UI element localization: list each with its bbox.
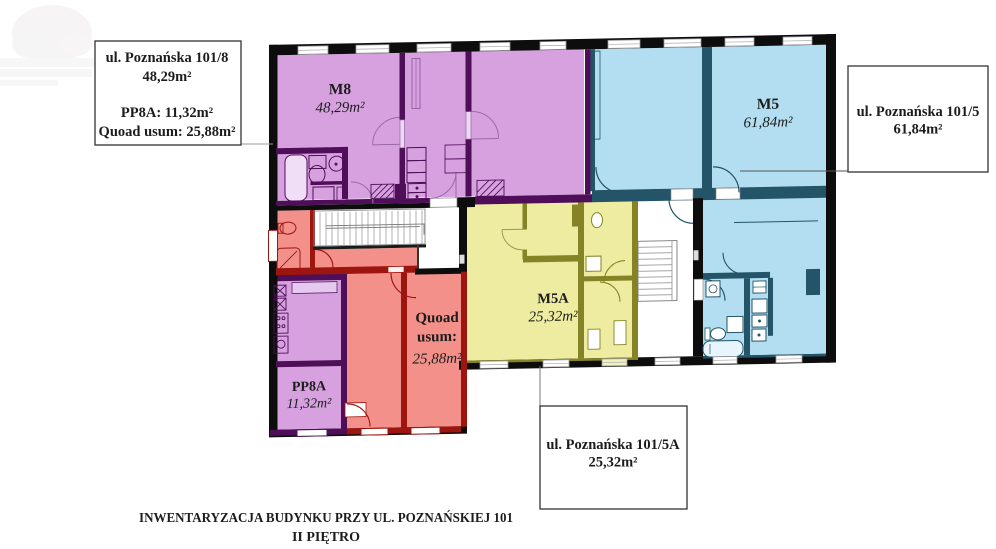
svg-text:PP8A: 11,32m²: PP8A: 11,32m² <box>121 105 213 121</box>
svg-text:11,32m²: 11,32m² <box>287 396 333 412</box>
svg-text:48,29m²: 48,29m² <box>315 100 365 117</box>
svg-text:25,32m²: 25,32m² <box>528 309 578 326</box>
svg-text:ul. Poznańska 101/8: ul. Poznańska 101/8 <box>106 50 229 66</box>
svg-text:M5A: M5A <box>537 291 569 308</box>
svg-text:48,29m²: 48,29m² <box>142 69 191 85</box>
svg-text:usum:: usum: <box>417 329 457 346</box>
svg-text:M8: M8 <box>329 81 352 98</box>
svg-text:61,84m²: 61,84m² <box>743 114 793 131</box>
svg-text:ul. Poznańska 101/5A: ul. Poznańska 101/5A <box>546 437 680 453</box>
svg-text:Quoad: Quoad <box>415 310 459 327</box>
svg-text:61,84m²: 61,84m² <box>893 122 942 138</box>
svg-text:Quoad usum: 25,88m²: Quoad usum: 25,88m² <box>99 124 236 140</box>
svg-text:INWENTARYZACJA BUDYNKU PRZY UL: INWENTARYZACJA BUDYNKU PRZY UL. POZNAŃSK… <box>139 509 513 526</box>
svg-text:25,88m²: 25,88m² <box>412 351 462 368</box>
svg-text:II PIĘTRO: II PIĘTRO <box>292 530 360 545</box>
svg-text:PP8A: PP8A <box>292 379 327 395</box>
svg-text:M5: M5 <box>757 96 780 113</box>
svg-text:ul. Poznańska 101/5: ul. Poznańska 101/5 <box>857 104 980 120</box>
svg-text:25,32m²: 25,32m² <box>588 455 637 471</box>
